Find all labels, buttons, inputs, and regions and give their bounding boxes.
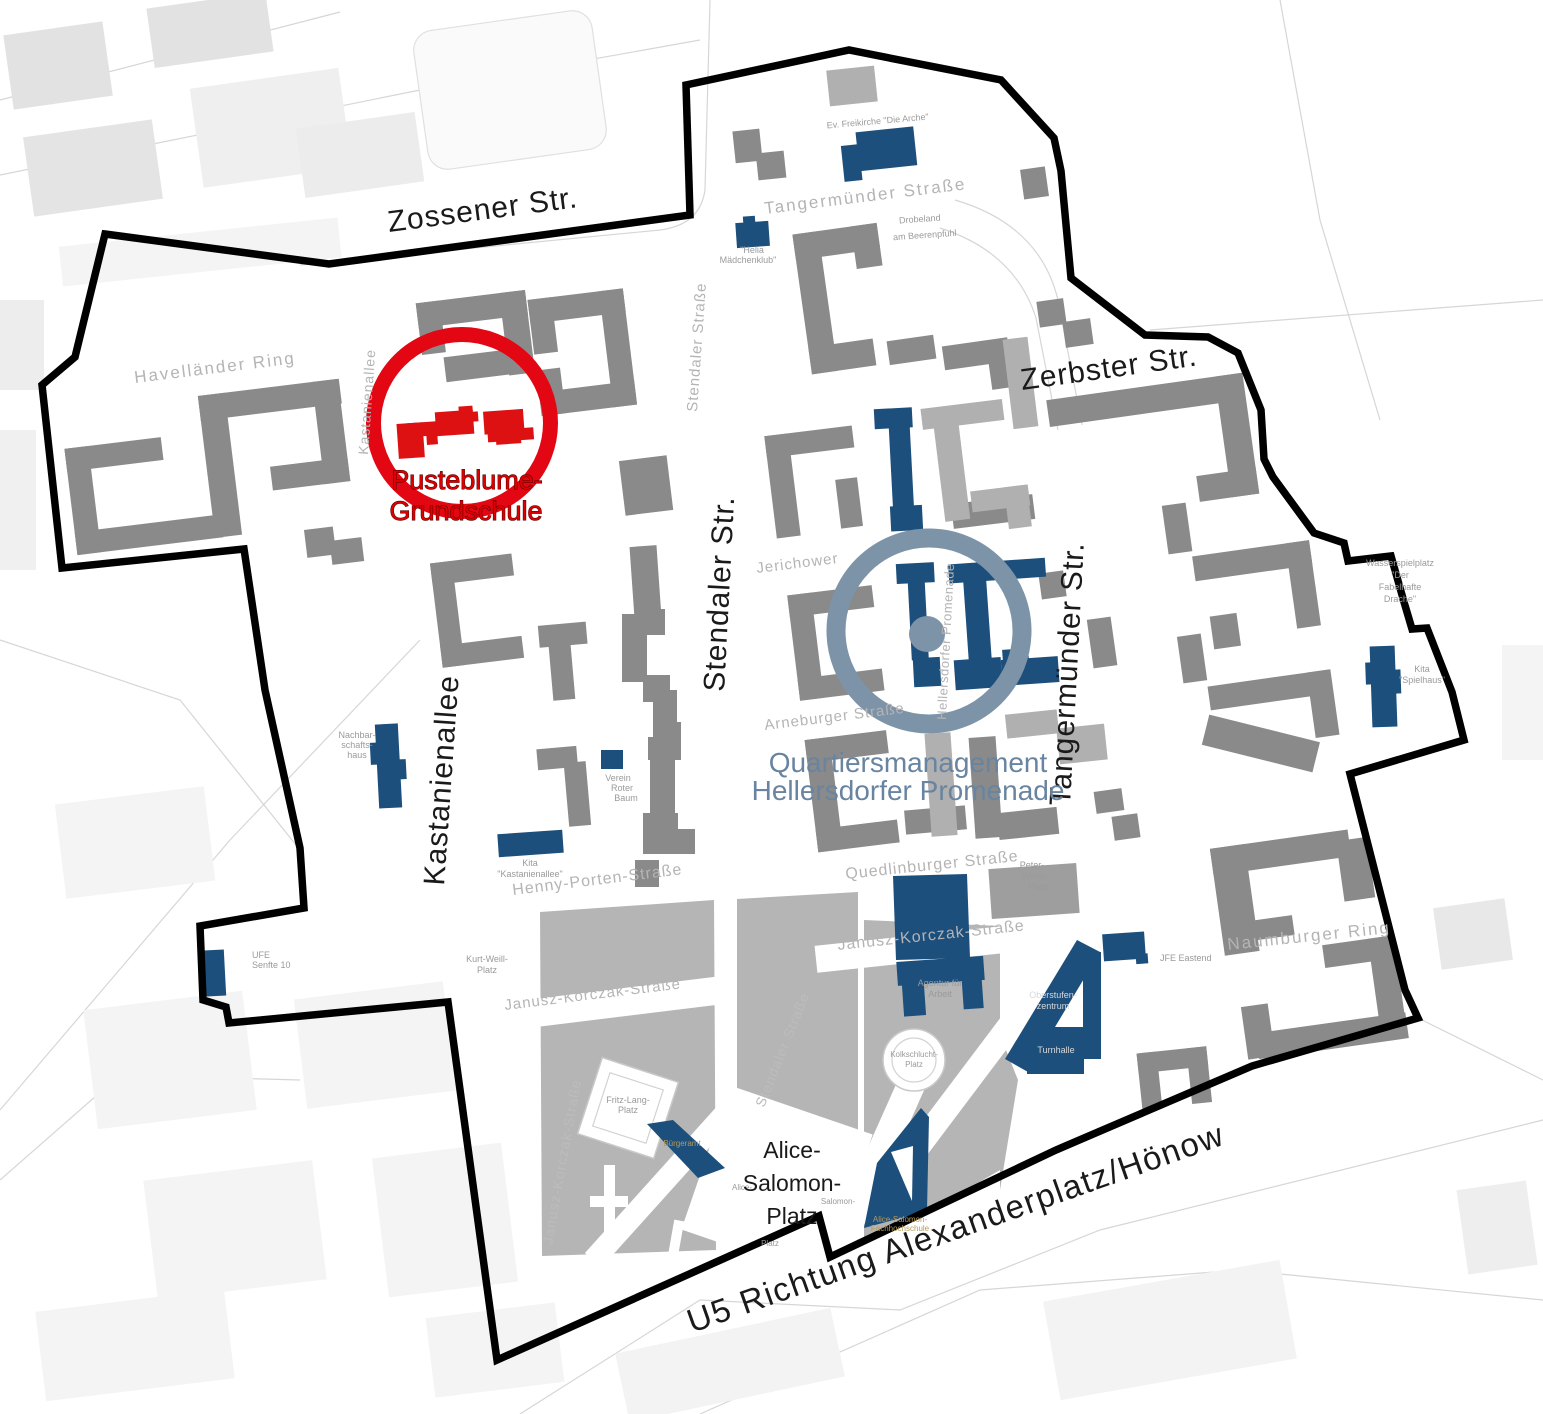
svg-text:Weiss-: Weiss-	[1021, 871, 1048, 881]
svg-text:Platz: Platz	[905, 1060, 923, 1069]
svg-text:Quartiersmanagement: Quartiersmanagement	[769, 747, 1048, 778]
svg-text:Hellersdorfer Promenade: Hellersdorfer Promenade	[752, 775, 1065, 806]
svg-text:Baum: Baum	[614, 793, 638, 803]
svg-text:Salomon-: Salomon-	[743, 1170, 841, 1196]
svg-text:haus: haus	[347, 750, 367, 760]
svg-text:Senfte 10: Senfte 10	[252, 960, 291, 970]
svg-text:Wasserspielplatz: Wasserspielplatz	[1366, 558, 1434, 568]
svg-text:Roter: Roter	[611, 783, 633, 793]
svg-text:Agentur für: Agentur für	[918, 978, 963, 988]
svg-text:UFE: UFE	[252, 950, 270, 960]
svg-text:Bürgeramt: Bürgeramt	[663, 1139, 701, 1148]
svg-text:Platz: Platz	[761, 1239, 779, 1248]
svg-text:Nachbar-: Nachbar-	[338, 730, 375, 740]
svg-text:Oberstufen-: Oberstufen-	[1029, 990, 1077, 1000]
svg-text:Pusteblume-: Pusteblume-	[391, 465, 543, 495]
svg-text:"Der: "Der	[1391, 570, 1409, 580]
svg-text:Kurt-Weill-: Kurt-Weill-	[466, 954, 508, 964]
svg-text:Alice-: Alice-	[763, 1137, 821, 1163]
svg-text:schafts-: schafts-	[341, 740, 373, 750]
svg-text:Grundschule: Grundschule	[389, 496, 542, 526]
svg-text:"Spielhaus": "Spielhaus"	[1399, 675, 1445, 685]
svg-text:Verein: Verein	[605, 773, 631, 783]
svg-text:Mädchenklub": Mädchenklub"	[720, 255, 777, 265]
svg-text:Salomon-: Salomon-	[821, 1197, 856, 1206]
svg-text:Peter-: Peter-	[1020, 860, 1045, 870]
svg-text:Turnhalle: Turnhalle	[1037, 1045, 1074, 1055]
svg-text:Platz: Platz	[477, 965, 498, 975]
svg-text:zentrum: zentrum	[1037, 1001, 1070, 1011]
svg-text:Platz: Platz	[618, 1105, 639, 1115]
svg-text:Platz: Platz	[1028, 882, 1049, 892]
svg-text:Arbeit: Arbeit	[928, 989, 952, 999]
svg-text:Drache": Drache"	[1384, 594, 1416, 604]
svg-text:Platz: Platz	[766, 1203, 817, 1229]
svg-text:Fabelhafte: Fabelhafte	[1379, 582, 1422, 592]
svg-text:Kolkschlucht-: Kolkschlucht-	[890, 1050, 938, 1059]
svg-text:"Kastanienallee": "Kastanienallee"	[497, 869, 562, 879]
svg-text:Fritz-Lang-: Fritz-Lang-	[606, 1095, 650, 1105]
svg-text:JFE Eastend: JFE Eastend	[1160, 953, 1212, 963]
svg-text:Kita: Kita	[522, 858, 538, 868]
svg-text:Kita: Kita	[1414, 664, 1430, 674]
svg-text:"Helia: "Helia	[740, 245, 764, 255]
